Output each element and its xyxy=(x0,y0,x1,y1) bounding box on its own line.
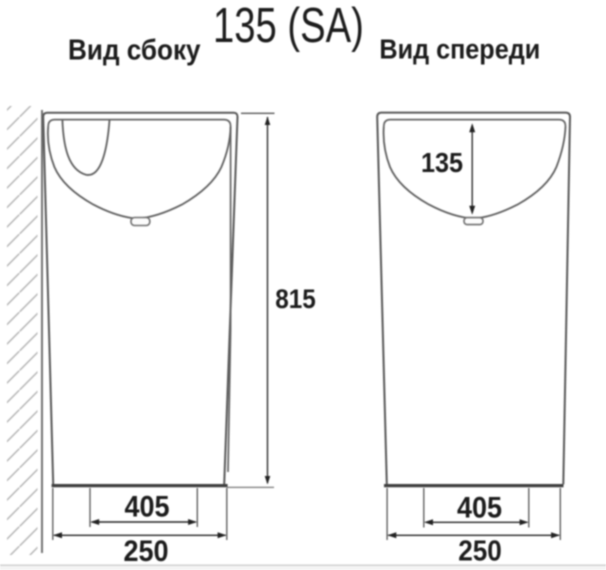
svg-text:250: 250 xyxy=(123,535,168,569)
svg-text:250: 250 xyxy=(458,534,502,567)
svg-text:405: 405 xyxy=(457,491,502,525)
svg-text:405: 405 xyxy=(124,490,169,524)
svg-text:135 (SA): 135 (SA) xyxy=(213,0,364,53)
svg-text:Вид спереди: Вид спереди xyxy=(379,33,540,65)
svg-text:Вид сбоку: Вид сбоку xyxy=(68,33,201,66)
svg-text:815: 815 xyxy=(275,285,316,314)
svg-text:135: 135 xyxy=(421,147,463,179)
